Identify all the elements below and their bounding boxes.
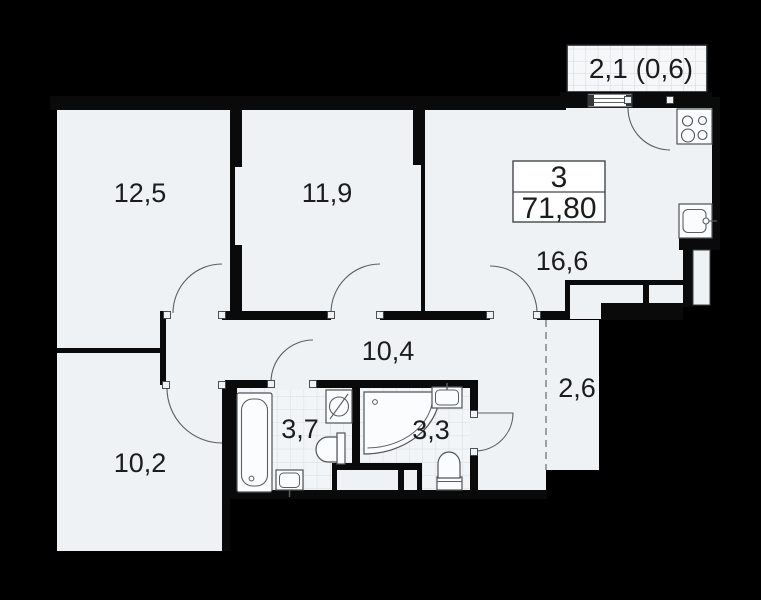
closet-cell-left	[337, 470, 398, 490]
doorway-bedroom-2	[331, 309, 380, 320]
niche-mid-floor	[601, 285, 643, 303]
door-jamb	[471, 411, 478, 418]
room-area-label-corridor: 2,6	[558, 373, 596, 403]
room-area-label-hallway: 10,4	[362, 336, 415, 366]
door-jamb	[164, 312, 171, 319]
room-area-label-kitchen: 16,6	[536, 246, 589, 276]
balcony-area-label: 2,1 (0,6)	[589, 53, 693, 84]
door-jamb	[625, 97, 632, 104]
entry-area-floor	[478, 319, 546, 490]
door-jamb	[487, 312, 494, 319]
room-area-label-bedroom-3: 10,2	[114, 448, 167, 478]
sink-wc	[432, 383, 462, 408]
door-jamb	[219, 312, 226, 319]
doorway-kitchen	[490, 309, 537, 320]
door-jamb	[667, 97, 674, 104]
floor-plan: 12,5 11,9 16,6 10,4 2,6 3,7 3,3 10,2 2,1…	[0, 0, 761, 600]
wall-segment	[601, 303, 683, 320]
room-area-label-wc: 3,3	[412, 415, 450, 445]
door-jamb	[471, 449, 478, 456]
bathtub	[237, 393, 272, 492]
apartment-info-box: 3 71,80	[513, 161, 605, 225]
room-area-label-bedroom-2: 11,9	[302, 178, 353, 208]
floor-plan-canvas: 12,5 11,9 16,6 10,4 2,6 3,7 3,3 10,2 2,1…	[0, 0, 761, 600]
hall-closet	[337, 470, 417, 490]
total-area: 71,80	[521, 192, 596, 225]
closet-cell-right	[404, 470, 417, 490]
wall-segment	[230, 110, 242, 167]
doorway-bathroom	[270, 380, 313, 390]
door-jamb	[534, 312, 541, 319]
wall-segment	[222, 311, 331, 320]
wall-segment	[643, 285, 649, 305]
room-bedroom-1-notch	[57, 110, 160, 348]
door-jamb	[163, 382, 170, 389]
stove-icon	[677, 109, 712, 144]
duct	[693, 250, 710, 305]
room-area-label-bathroom: 3,7	[281, 414, 319, 444]
kitchen-sink	[679, 204, 717, 238]
door-jamb	[268, 381, 275, 388]
wall-segment	[352, 388, 360, 463]
wall-segment	[50, 96, 566, 110]
wall-segment	[230, 490, 547, 499]
door-jamb	[377, 312, 384, 319]
wall-segment	[565, 285, 570, 319]
wall-segment	[413, 110, 425, 165]
window-end-cap	[588, 95, 594, 106]
room-bedroom-2-floor	[235, 110, 421, 311]
wall-segment	[57, 348, 160, 353]
doorway-bedroom-1	[167, 309, 222, 320]
wall-segment	[565, 280, 683, 285]
wall-segment	[230, 167, 235, 245]
wall-segment	[160, 311, 166, 385]
niche-right-floor	[649, 285, 683, 303]
door-jamb	[310, 381, 317, 388]
washing-machine-icon	[326, 390, 352, 423]
wall-segment	[380, 311, 490, 320]
wall-segment	[421, 165, 425, 311]
wall-segment	[222, 388, 237, 497]
door-jamb	[219, 382, 226, 389]
room-area-label-bedroom-1: 12,5	[114, 178, 167, 208]
wall-segment	[560, 92, 712, 108]
door-jamb	[328, 312, 335, 319]
niche-left-floor	[570, 285, 601, 319]
toilet-wc	[437, 452, 462, 490]
wall-segment	[712, 97, 720, 250]
wall-segment	[230, 245, 242, 311]
doorway-wc	[470, 413, 478, 453]
rooms-count: 3	[551, 161, 568, 194]
wall-segment	[679, 238, 712, 250]
wall-segment	[470, 380, 478, 415]
wall-segment	[225, 380, 270, 388]
